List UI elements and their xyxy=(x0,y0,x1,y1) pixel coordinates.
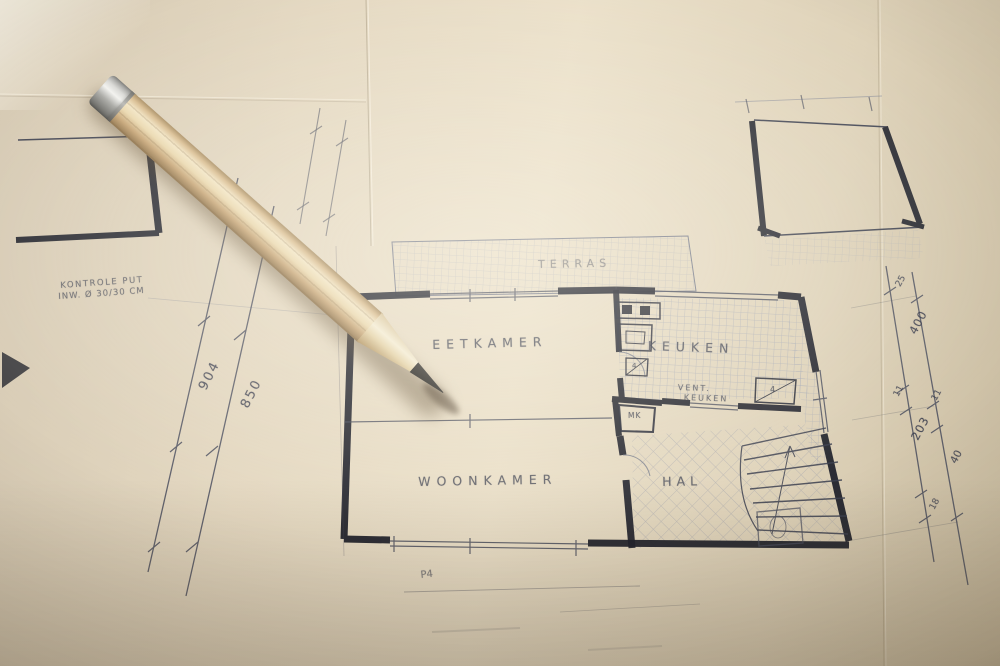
blueprint-linework xyxy=(0,0,1000,666)
top-right-room xyxy=(735,95,924,236)
room-label-keuken: KEUKEN xyxy=(647,338,734,356)
vent-keuken-label-line1: VENT. xyxy=(678,383,711,393)
interior-thin-lines xyxy=(345,403,738,428)
room-label-eetkamer: EETKAMER xyxy=(432,334,548,352)
garage-apron-hatch xyxy=(765,230,924,266)
room-label-hal: HAL xyxy=(662,473,702,489)
vent-keuken-label-line2: KEUKEN xyxy=(684,393,729,404)
faint-bottom-marks xyxy=(404,586,700,650)
photo-of-blueprint: TERRAS EETKAMER KEUKEN VENT. KEUKEN MK W… xyxy=(0,0,1000,666)
room-label-terras: TERRAS xyxy=(538,257,611,271)
room-label-woonkamer: WOONKAMER xyxy=(418,472,558,489)
dimension-chain-right xyxy=(851,266,968,585)
vent-mark-b: 4 xyxy=(770,385,775,394)
vent-mark-a: 4 xyxy=(632,362,636,370)
room-label-mk: MK xyxy=(628,411,641,420)
mark-p4: P4 xyxy=(420,569,433,581)
